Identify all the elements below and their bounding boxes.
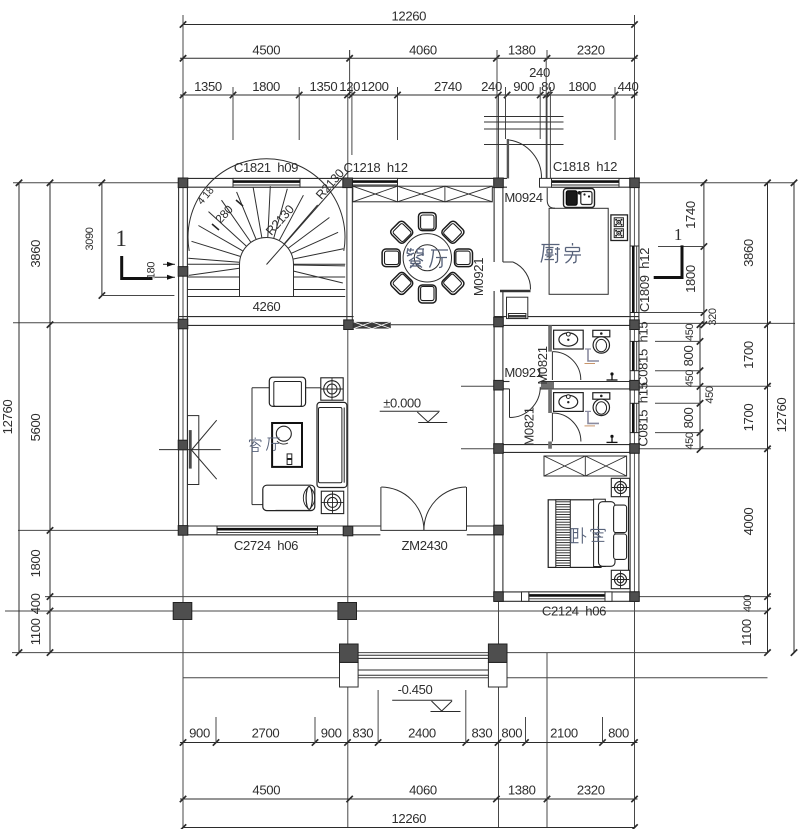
svg-text:450: 450 <box>684 370 696 388</box>
svg-text:±0.000: ±0.000 <box>383 396 421 411</box>
svg-text:M0921: M0921 <box>471 258 486 296</box>
svg-text:4060: 4060 <box>409 42 437 57</box>
svg-text:4500: 4500 <box>252 783 280 798</box>
svg-text:C1809 h12: C1809 h12 <box>637 248 652 312</box>
svg-text:1350: 1350 <box>194 79 222 94</box>
svg-text:C2724 h06: C2724 h06 <box>234 538 298 553</box>
svg-text:C1818 h12: C1818 h12 <box>553 159 617 174</box>
svg-text:1740: 1740 <box>683 201 698 229</box>
svg-text:4260: 4260 <box>253 299 281 314</box>
svg-text:1: 1 <box>115 226 126 251</box>
svg-text:830: 830 <box>472 726 493 741</box>
svg-text:3860: 3860 <box>741 239 756 267</box>
svg-text:1800: 1800 <box>28 550 43 578</box>
svg-text:450: 450 <box>684 432 696 450</box>
svg-text:80: 80 <box>541 79 555 94</box>
svg-text:2700: 2700 <box>252 726 280 741</box>
svg-text:2740: 2740 <box>434 79 462 94</box>
svg-text:1800: 1800 <box>252 79 280 94</box>
svg-text:-0.450: -0.450 <box>398 682 433 697</box>
svg-text:240: 240 <box>529 65 550 80</box>
svg-text:C0815 h15: C0815 h15 <box>636 382 651 446</box>
svg-text:2320: 2320 <box>577 783 605 798</box>
svg-text:240: 240 <box>481 79 502 94</box>
svg-text:C1218 h12: C1218 h12 <box>343 160 407 175</box>
svg-text:ZM2430: ZM2430 <box>402 538 448 553</box>
svg-text:M0924: M0924 <box>504 190 542 205</box>
svg-text:2100: 2100 <box>550 726 578 741</box>
svg-text:4000: 4000 <box>741 508 756 536</box>
svg-text:120: 120 <box>339 79 360 94</box>
svg-text:450: 450 <box>704 386 716 404</box>
svg-text:320: 320 <box>707 308 719 326</box>
svg-text:1100: 1100 <box>28 618 43 645</box>
svg-text:400: 400 <box>742 595 754 613</box>
svg-text:1200: 1200 <box>361 79 389 94</box>
svg-text:C2124 h06: C2124 h06 <box>542 604 606 619</box>
svg-text:800: 800 <box>681 408 696 429</box>
svg-text:900: 900 <box>513 79 534 94</box>
svg-text:1: 1 <box>674 225 682 244</box>
svg-text:1350: 1350 <box>310 79 338 94</box>
svg-text:M0821: M0821 <box>535 346 550 384</box>
svg-text:900: 900 <box>189 726 210 741</box>
svg-text:4060: 4060 <box>409 783 437 798</box>
svg-text:12760: 12760 <box>774 398 789 433</box>
svg-text:3860: 3860 <box>28 240 43 268</box>
svg-text:M0821: M0821 <box>522 407 537 445</box>
svg-text:900: 900 <box>321 726 342 741</box>
svg-text:450: 450 <box>684 324 696 342</box>
svg-text:C0815 h15: C0815 h15 <box>636 322 651 386</box>
svg-text:5600: 5600 <box>28 414 43 442</box>
svg-text:1700: 1700 <box>741 341 756 369</box>
svg-text:830: 830 <box>352 726 373 741</box>
svg-text:400: 400 <box>28 593 43 614</box>
svg-text:2320: 2320 <box>577 42 605 57</box>
svg-text:800: 800 <box>501 726 522 741</box>
svg-text:800: 800 <box>608 726 629 741</box>
svg-text:1700: 1700 <box>741 404 756 432</box>
svg-text:C1821 h09: C1821 h09 <box>234 160 298 175</box>
svg-text:12260: 12260 <box>391 9 426 24</box>
svg-text:12260: 12260 <box>391 811 426 826</box>
svg-text:800: 800 <box>681 346 696 367</box>
svg-text:1800: 1800 <box>683 265 698 293</box>
svg-text:12760: 12760 <box>0 400 15 435</box>
svg-text:4500: 4500 <box>252 42 280 57</box>
svg-text:1800: 1800 <box>568 79 596 94</box>
svg-text:2400: 2400 <box>408 726 436 741</box>
svg-text:1380: 1380 <box>508 42 536 57</box>
svg-text:1100: 1100 <box>739 619 754 646</box>
svg-text:440: 440 <box>618 79 639 94</box>
svg-text:3090: 3090 <box>84 227 96 250</box>
svg-text:180: 180 <box>146 262 158 280</box>
svg-text:1380: 1380 <box>508 783 536 798</box>
